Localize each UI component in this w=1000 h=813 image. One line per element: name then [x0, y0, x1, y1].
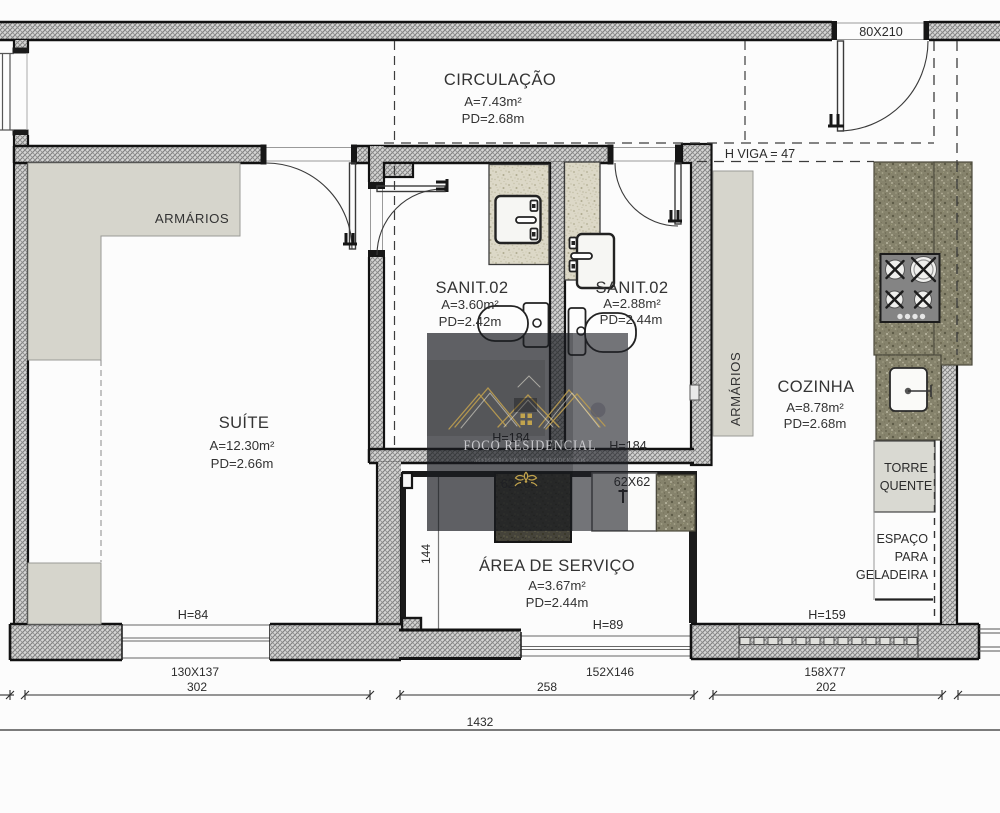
svg-text:ARMÁRIOS: ARMÁRIOS [155, 211, 229, 226]
svg-text:A=2.88m²: A=2.88m² [603, 296, 661, 311]
svg-text:302: 302 [187, 680, 207, 694]
svg-text:258: 258 [537, 680, 557, 694]
svg-text:PD=2.44m: PD=2.44m [600, 312, 663, 327]
svg-text:COZINHA: COZINHA [777, 378, 854, 396]
svg-text:ASSESSORIA EM IMOVEIS RESIDENC: ASSESSORIA EM IMOVEIS RESIDENCIAIS [474, 458, 586, 464]
svg-text:SANIT.02: SANIT.02 [436, 279, 509, 297]
svg-text:ARMÁRIOS: ARMÁRIOS [728, 352, 743, 426]
svg-text:144: 144 [419, 544, 433, 564]
svg-text:A=12.30m²: A=12.30m² [210, 438, 275, 453]
svg-text:152X146: 152X146 [586, 665, 634, 679]
svg-text:QUENTE: QUENTE [880, 479, 932, 493]
svg-text:PARA: PARA [895, 550, 929, 564]
svg-text:ESPAÇO: ESPAÇO [876, 532, 928, 546]
svg-text:A=3.67m²: A=3.67m² [528, 578, 586, 593]
svg-text:202: 202 [816, 680, 836, 694]
svg-text:1432: 1432 [467, 715, 494, 729]
svg-text:PD=2.44m: PD=2.44m [526, 595, 589, 610]
svg-text:H=84: H=84 [178, 608, 208, 622]
svg-text:GELADEIRA: GELADEIRA [856, 568, 929, 582]
svg-text:FOCO RESIDENCIAL: FOCO RESIDENCIAL [464, 438, 597, 454]
svg-text:PD=2.68m: PD=2.68m [462, 111, 525, 126]
svg-text:SUÍTE: SUÍTE [219, 413, 270, 432]
svg-text:H VIGA = 47: H VIGA = 47 [725, 147, 795, 161]
svg-text:PD=2.42m: PD=2.42m [439, 314, 502, 329]
svg-text:CIRCULAÇÃO: CIRCULAÇÃO [444, 69, 556, 89]
svg-text:ÁREA DE SERVIÇO: ÁREA DE SERVIÇO [479, 556, 635, 575]
svg-text:158X77: 158X77 [804, 665, 846, 679]
svg-text:130X137: 130X137 [171, 665, 219, 679]
svg-text:TORRE: TORRE [884, 461, 928, 475]
svg-text:80X210: 80X210 [859, 25, 902, 39]
svg-text:PD=2.66m: PD=2.66m [211, 456, 274, 471]
svg-text:A=8.78m²: A=8.78m² [786, 400, 844, 415]
svg-text:SANIT.02: SANIT.02 [596, 279, 669, 297]
svg-text:H=159: H=159 [808, 608, 845, 622]
svg-text:A=7.43m²: A=7.43m² [464, 94, 522, 109]
svg-text:A=3.60m²: A=3.60m² [441, 297, 499, 312]
svg-text:H=89: H=89 [593, 618, 623, 632]
svg-text:PD=2.68m: PD=2.68m [784, 416, 847, 431]
